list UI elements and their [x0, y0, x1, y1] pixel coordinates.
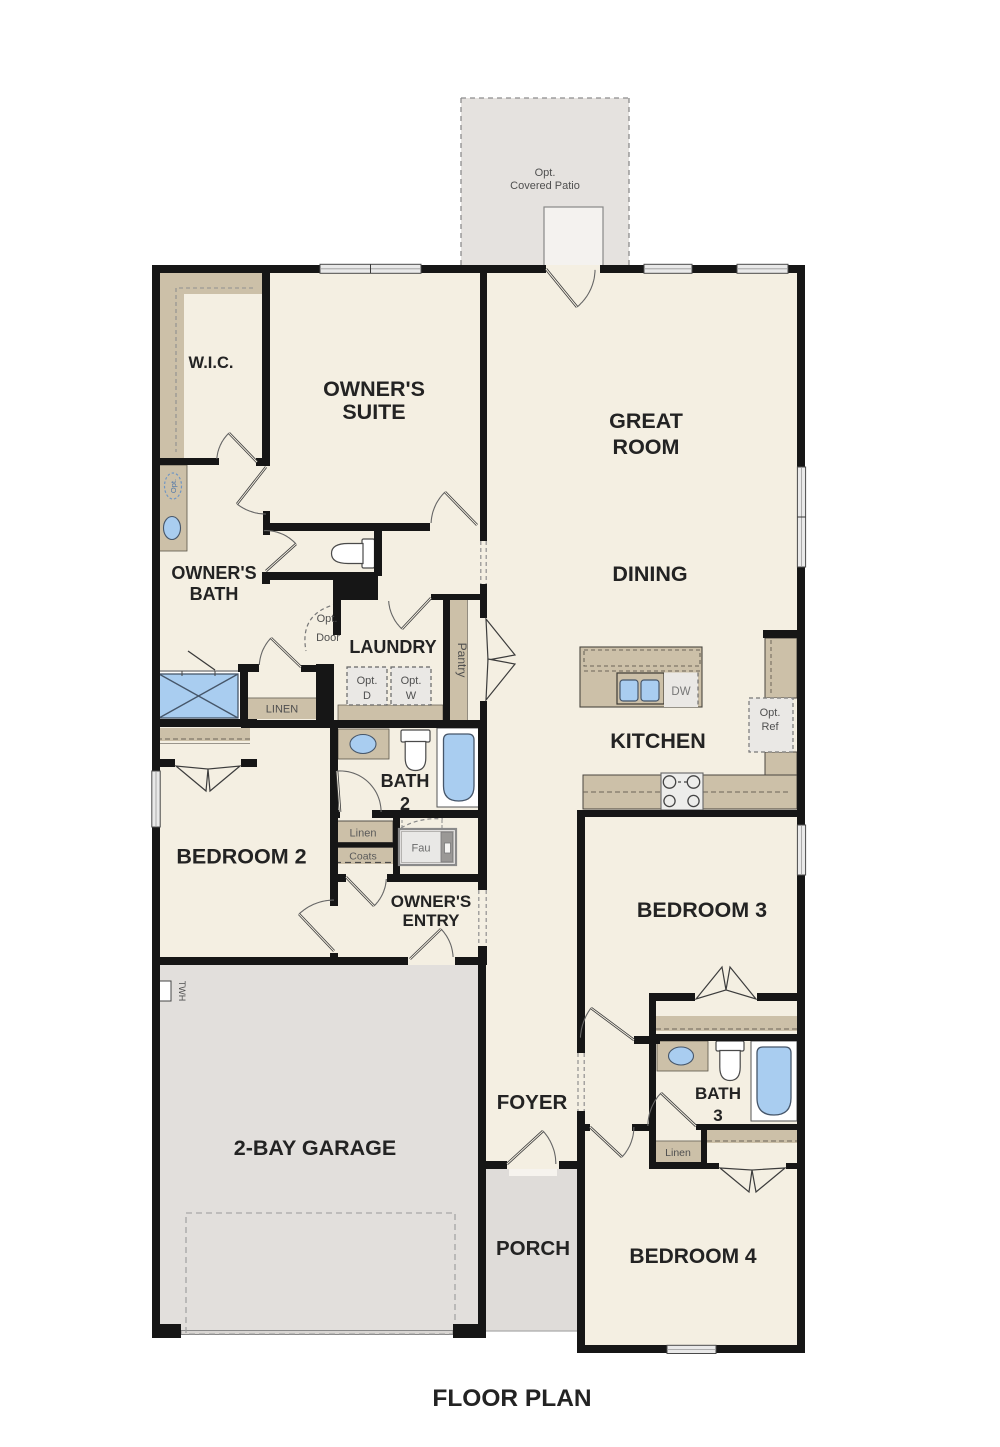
svg-text:W: W	[406, 690, 417, 702]
svg-text:Opt.: Opt.	[760, 707, 781, 719]
svg-text:BEDROOM 3: BEDROOM 3	[637, 898, 767, 922]
svg-text:W.I.C.: W.I.C.	[189, 354, 234, 372]
svg-text:DINING: DINING	[612, 562, 687, 586]
svg-text:3: 3	[713, 1106, 722, 1125]
svg-text:BATH: BATH	[190, 584, 239, 604]
svg-text:DW: DW	[671, 686, 690, 698]
svg-text:OWNER'S: OWNER'S	[391, 892, 472, 911]
svg-text:BEDROOM 4: BEDROOM 4	[629, 1245, 757, 1268]
svg-text:Ref: Ref	[761, 721, 779, 733]
svg-text:SUITE: SUITE	[342, 400, 405, 424]
svg-text:Opt.: Opt.	[357, 675, 378, 687]
svg-text:FLOOR PLAN: FLOOR PLAN	[432, 1385, 591, 1412]
svg-text:Door: Door	[316, 632, 340, 644]
svg-text:2: 2	[400, 794, 410, 814]
svg-text:Fau: Fau	[412, 843, 431, 855]
svg-text:PORCH: PORCH	[496, 1237, 570, 1260]
svg-text:Opt.: Opt.	[401, 675, 422, 687]
svg-text:ENTRY: ENTRY	[403, 911, 461, 930]
svg-text:LAUNDRY: LAUNDRY	[349, 637, 436, 657]
svg-text:OWNER'S: OWNER'S	[171, 563, 256, 583]
svg-text:Linen: Linen	[350, 828, 377, 840]
svg-text:FOYER: FOYER	[497, 1091, 568, 1114]
svg-text:BATH: BATH	[381, 771, 430, 791]
svg-text:GREAT: GREAT	[609, 409, 683, 433]
svg-text:2-BAY GARAGE: 2-BAY GARAGE	[234, 1136, 397, 1160]
svg-text:Opt.: Opt.	[535, 167, 556, 179]
svg-text:KITCHEN: KITCHEN	[610, 729, 706, 753]
svg-text:D: D	[363, 690, 371, 702]
svg-text:Covered Patio: Covered Patio	[510, 180, 580, 192]
svg-text:Pantry: Pantry	[455, 643, 469, 678]
svg-text:ROOM: ROOM	[613, 435, 680, 459]
svg-text:TWH: TWH	[177, 981, 187, 1002]
svg-text:Coats: Coats	[349, 851, 376, 863]
svg-text:OWNER'S: OWNER'S	[323, 377, 425, 401]
svg-text:Opt.: Opt.	[317, 613, 338, 625]
svg-text:Linen: Linen	[665, 1147, 691, 1159]
svg-text:BATH: BATH	[695, 1084, 741, 1103]
svg-text:Opt.: Opt.	[169, 479, 178, 493]
svg-text:LINEN: LINEN	[266, 704, 298, 716]
svg-text:BEDROOM 2: BEDROOM 2	[176, 845, 306, 869]
